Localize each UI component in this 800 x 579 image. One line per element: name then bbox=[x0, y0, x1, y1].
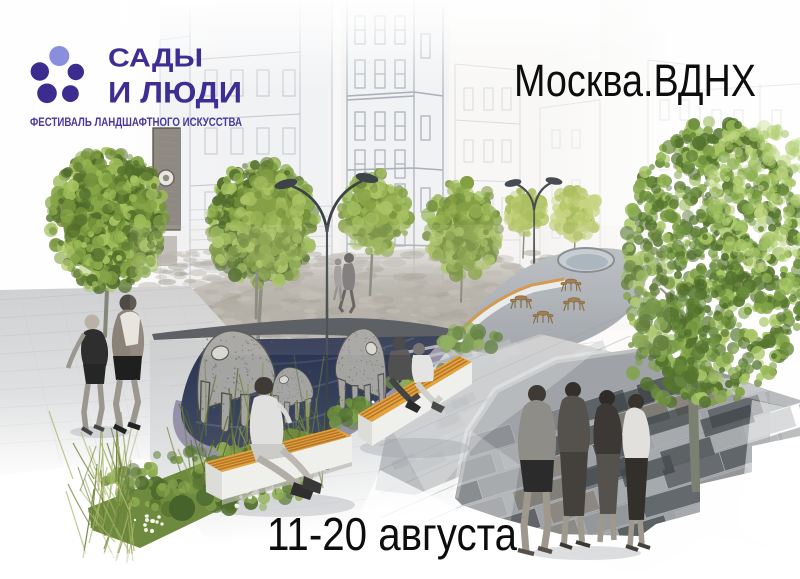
svg-text:САДЫ: САДЫ bbox=[108, 43, 203, 73]
svg-text:11-20 августа: 11-20 августа bbox=[267, 508, 517, 560]
svg-text:ФЕСТИВАЛЬ ЛАНДШАФТНОГО ИСКУССТ: ФЕСТИВАЛЬ ЛАНДШАФТНОГО ИСКУССТВА bbox=[30, 117, 242, 129]
svg-text:Москва.ВДНХ: Москва.ВДНХ bbox=[514, 55, 756, 106]
svg-text:И ЛЮДИ: И ЛЮДИ bbox=[108, 77, 242, 110]
